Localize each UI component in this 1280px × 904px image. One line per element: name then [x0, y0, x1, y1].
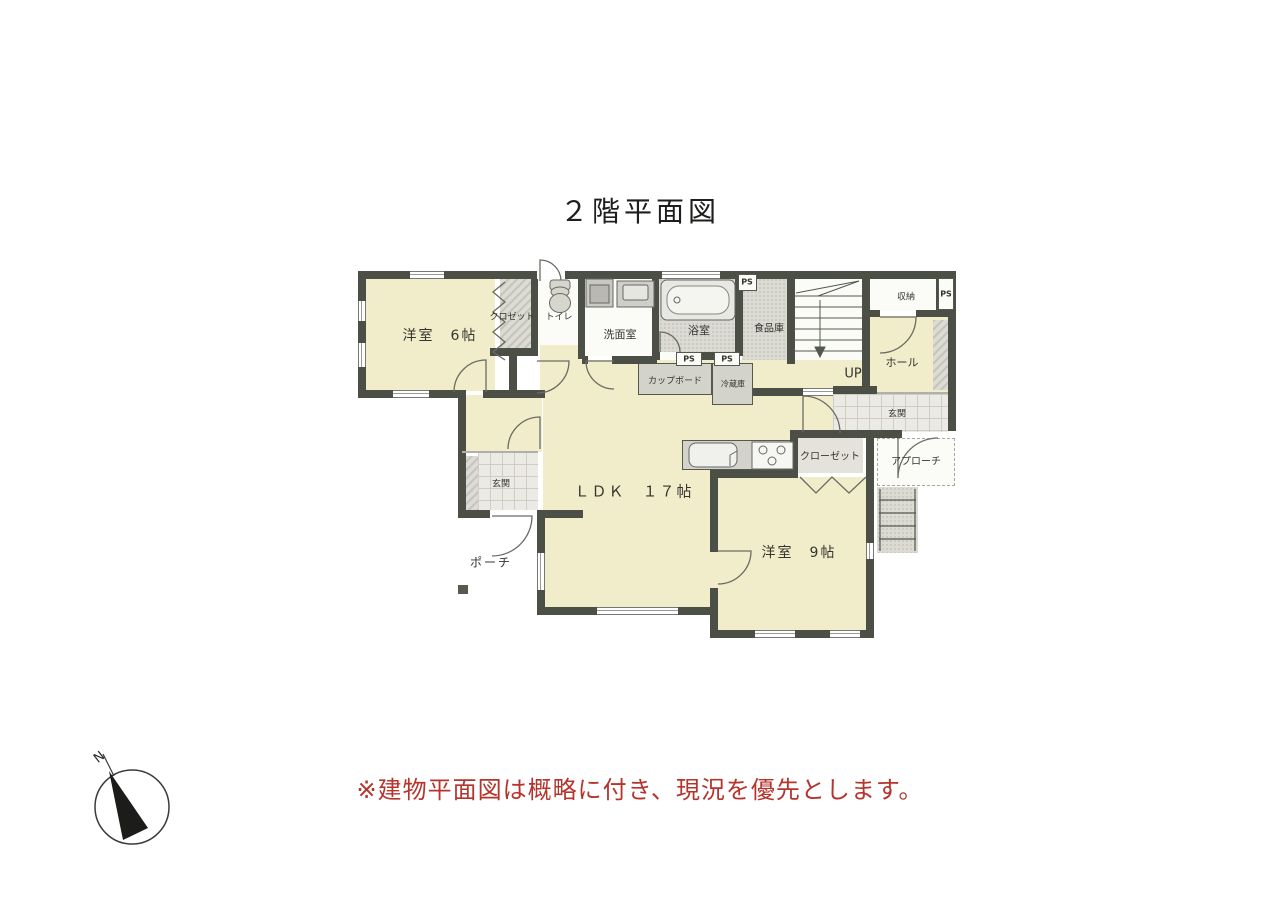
room-label-washroom: 洗面室	[604, 326, 637, 342]
wall-segment	[916, 310, 948, 317]
genkan-left-step-edge	[462, 451, 538, 453]
wall-segment	[793, 630, 832, 638]
window	[358, 301, 366, 321]
window	[358, 343, 366, 367]
room-bathroom-floor	[659, 278, 735, 354]
label-fridge: 冷蔵庫	[721, 379, 745, 390]
front-door-left-arc	[492, 516, 532, 556]
label-ps: PS	[940, 290, 952, 299]
room-label-ldk: ＬＤＫ １７帖	[574, 481, 693, 502]
label-approach: アプローチ	[891, 453, 941, 468]
compass-north-label: N	[91, 749, 108, 767]
wall-segment	[753, 388, 803, 396]
kitchen-counter	[682, 440, 796, 470]
room-label-entrance-left: 玄関	[492, 477, 510, 490]
window	[393, 390, 429, 398]
label-porch: ポーチ	[470, 554, 512, 571]
wall-segment	[458, 390, 466, 460]
window	[662, 271, 720, 279]
room-label-toilet: トイレ	[545, 310, 572, 323]
wall-segment	[537, 607, 599, 615]
wall-segment	[787, 271, 795, 364]
wall-segment	[862, 430, 902, 438]
room-label-closet9: クローゼット	[800, 448, 860, 463]
disclaimer-note: ※建物平面図は概略に付き、現況を優先とします。	[0, 770, 1280, 805]
ldk-nook-floor	[795, 396, 835, 432]
label-ps: PS	[721, 355, 733, 364]
room-label-bedroom6: 洋室 6帖	[403, 325, 478, 345]
wall-segment	[543, 510, 583, 518]
wall-segment	[870, 310, 880, 317]
wall-segment	[578, 271, 585, 359]
wall-segment	[612, 356, 657, 364]
label-ps: PS	[741, 278, 753, 287]
room-label-closet-small: クロゼット	[489, 310, 534, 323]
sliding-door-pantry	[803, 388, 833, 396]
wall-segment	[833, 386, 877, 394]
window	[755, 630, 795, 638]
window-sliding	[597, 607, 678, 615]
label-ps: PS	[683, 355, 695, 364]
exterior-stairs-floor	[877, 487, 918, 553]
label-stairs-up: UP	[844, 367, 861, 382]
hall-closet-strip	[933, 320, 948, 390]
room-label-hall: ホール	[886, 354, 919, 370]
page-title: ２階平面図	[0, 190, 1280, 230]
porch-marker	[458, 585, 468, 594]
hallway-left-floor	[462, 395, 542, 452]
window	[830, 630, 860, 638]
wall-segment	[458, 452, 466, 514]
wall-segment	[710, 470, 718, 552]
window	[866, 543, 874, 559]
label-cupboard: カップボード	[648, 374, 702, 387]
wall-segment	[652, 276, 659, 359]
room-label-entrance-right: 玄関	[888, 407, 906, 420]
window	[410, 271, 444, 279]
room-washroom-floor	[585, 278, 652, 356]
wall-segment	[710, 630, 757, 638]
room-label-bedroom9: 洋室 9帖	[762, 542, 837, 562]
window	[537, 553, 545, 590]
room-label-storage: 収納	[897, 290, 915, 303]
wall-segment	[862, 271, 870, 393]
floor-plan-page: ２階平面図	[0, 0, 1280, 904]
wall-segment	[509, 348, 517, 392]
staircase-floor	[794, 278, 862, 360]
genkan-step-edge	[877, 392, 948, 394]
wall-segment	[458, 510, 490, 518]
room-label-bathroom: 浴室	[688, 322, 710, 338]
wall-segment	[358, 271, 366, 398]
room-label-pantry: 食品庫	[754, 320, 784, 335]
toilet-door-gap	[537, 271, 565, 279]
wall-segment	[710, 470, 798, 478]
